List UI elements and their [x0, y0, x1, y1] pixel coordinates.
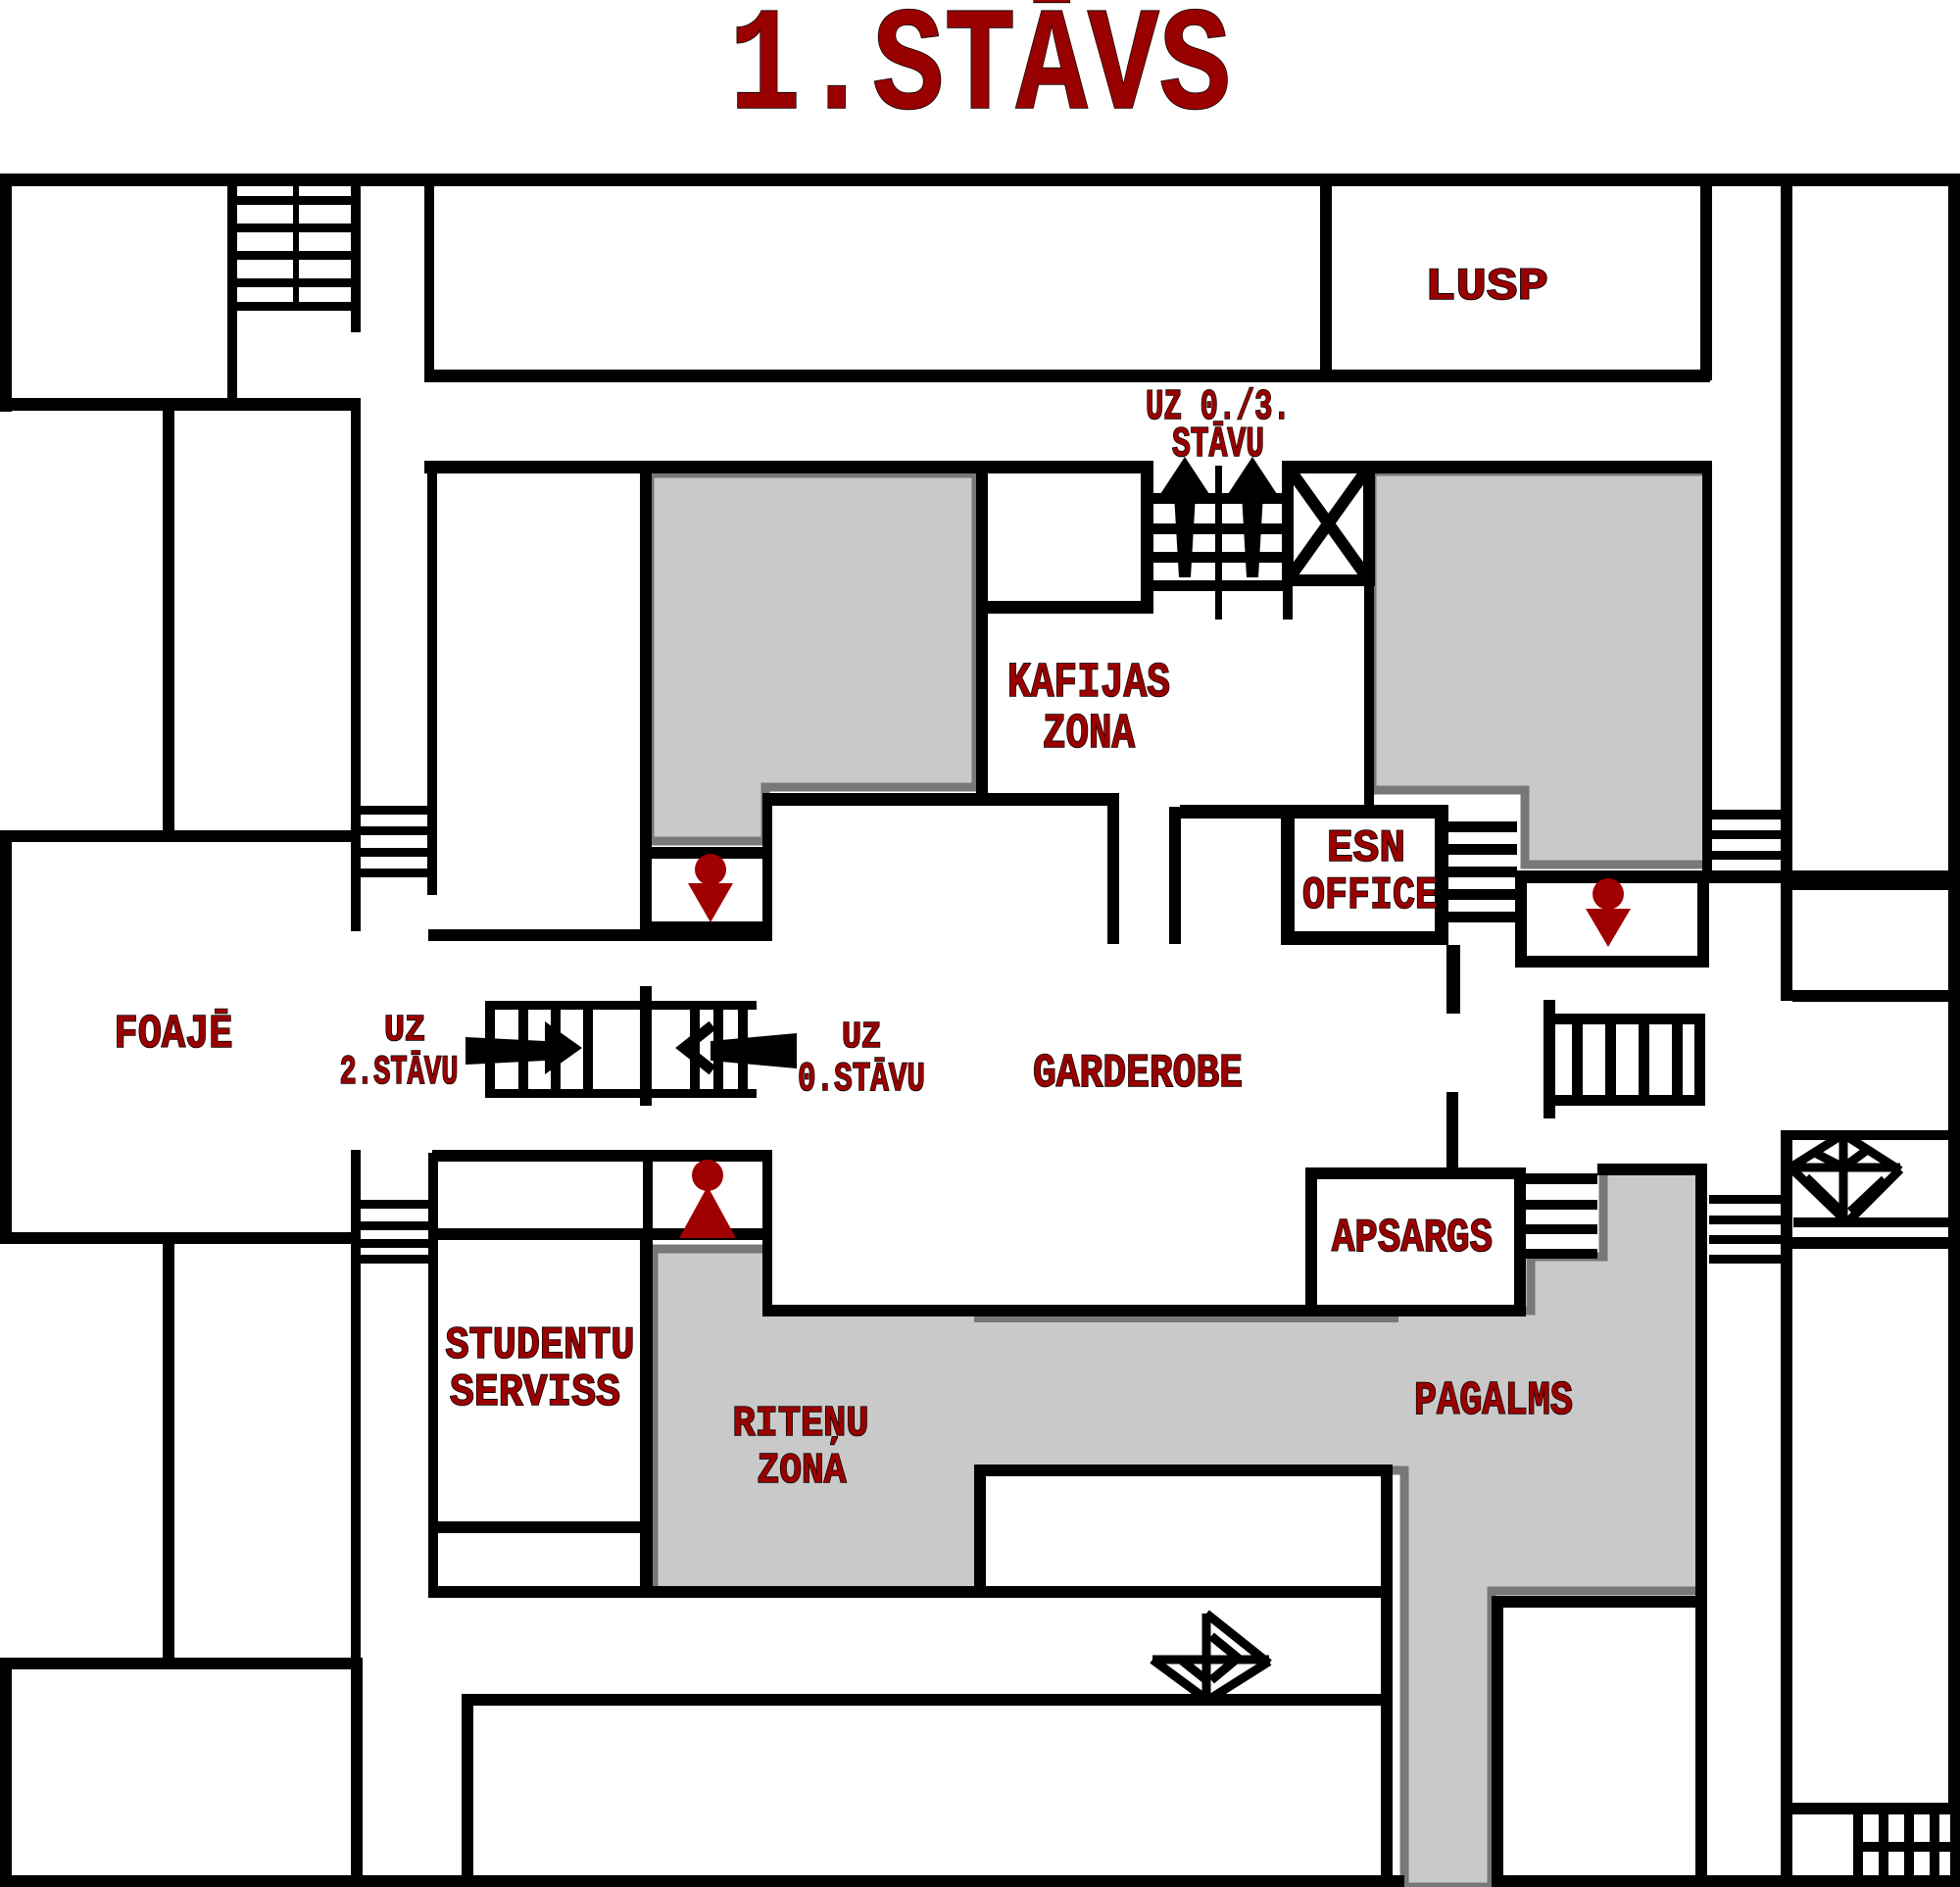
- svg-text:STUDENTU: STUDENTU: [446, 1320, 635, 1371]
- svg-text:ZONA: ZONA: [1043, 707, 1135, 763]
- svg-text:RITEŅU: RITEŅU: [733, 1400, 869, 1449]
- svg-text:PAGALMS: PAGALMS: [1414, 1375, 1573, 1428]
- svg-text:UZ: UZ: [384, 1010, 425, 1052]
- svg-text:APSARGS: APSARGS: [1332, 1213, 1493, 1266]
- svg-text:KAFIJAS: KAFIJAS: [1007, 656, 1170, 712]
- svg-text:2.STĀVU: 2.STĀVU: [340, 1049, 459, 1096]
- svg-text:FOAJĒ: FOAJĒ: [115, 1009, 233, 1062]
- svg-text:0.STĀVU: 0.STĀVU: [798, 1056, 925, 1103]
- svg-text:STĀVU: STĀVU: [1172, 421, 1264, 470]
- svg-text:UZ: UZ: [842, 1017, 881, 1059]
- svg-text:ESN: ESN: [1327, 823, 1405, 874]
- svg-text:1.STĀVS: 1.STĀVS: [729, 0, 1231, 153]
- svg-text:ZONA: ZONA: [758, 1447, 848, 1496]
- svg-text:GARDEROBE: GARDEROBE: [1033, 1048, 1243, 1101]
- svg-text:SERVISS: SERVISS: [450, 1367, 620, 1418]
- svg-text:OFFICE: OFFICE: [1302, 870, 1438, 921]
- svg-text:LUSP: LUSP: [1425, 262, 1548, 313]
